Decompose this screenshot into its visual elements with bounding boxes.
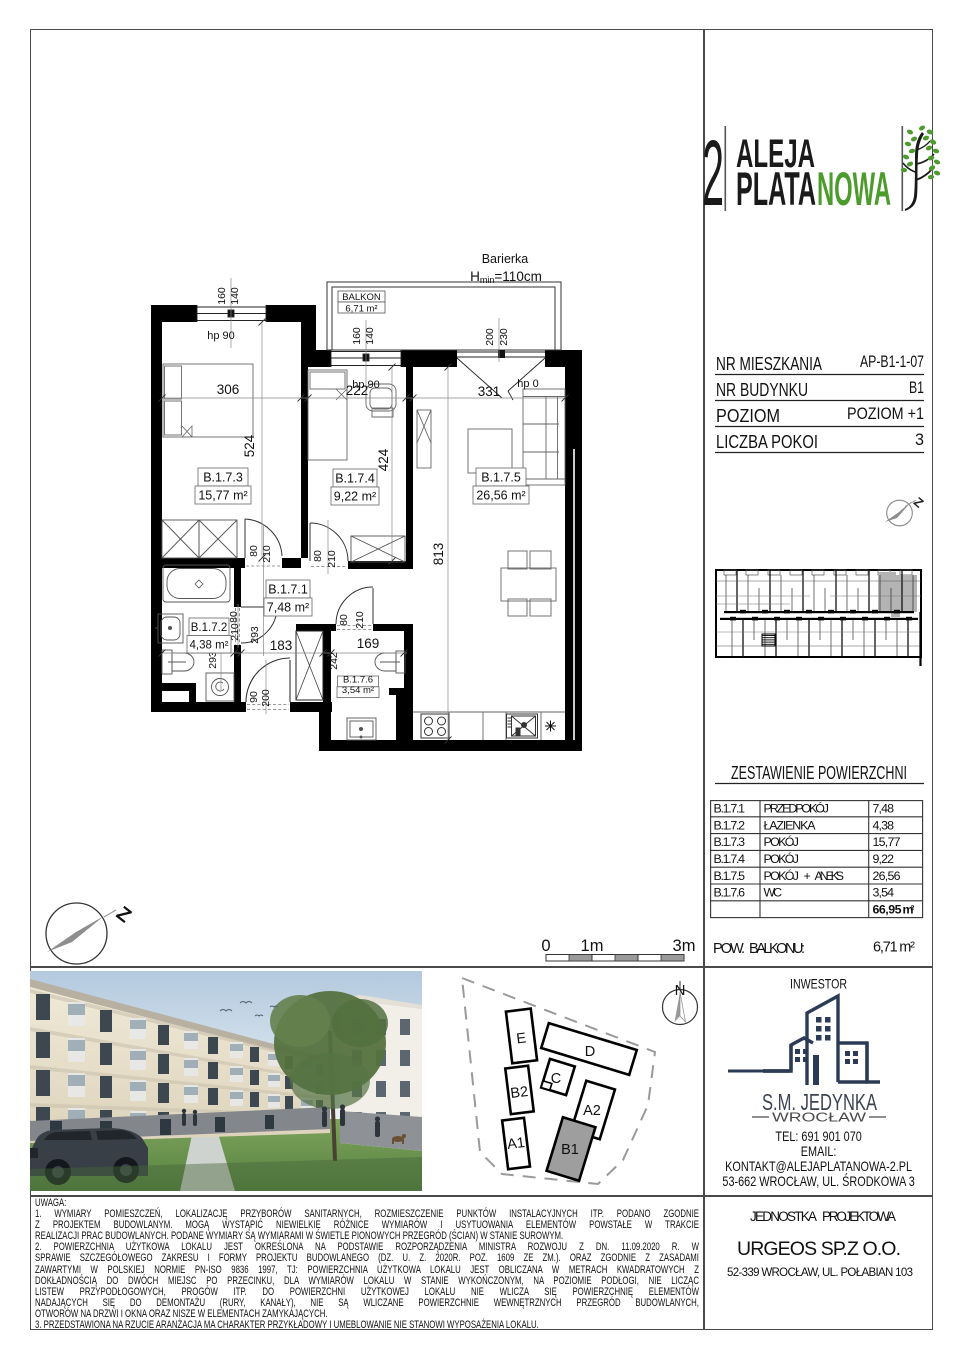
svg-text:A1: A1: [506, 1135, 526, 1153]
svg-text:B1: B1: [561, 1142, 579, 1158]
svg-text:A2: A2: [583, 1103, 601, 1119]
svg-text:POW.: POW.: [713, 941, 745, 957]
svg-text:3: 3: [915, 430, 924, 449]
svg-text:NOWA: NOWA: [817, 162, 891, 215]
svg-text:C: C: [551, 1071, 561, 1087]
svg-text:3,54: 3,54: [873, 886, 895, 900]
svg-text:B.1.7.2: B.1.7.2: [714, 818, 746, 832]
svg-text:PLATA: PLATA: [736, 162, 816, 215]
svg-text:B2: B2: [510, 1084, 530, 1102]
svg-text:7,48: 7,48: [873, 802, 895, 816]
svg-text:JEDNOSTKA: JEDNOSTKA: [750, 1209, 817, 1224]
svg-text:ŁAZIENKA: ŁAZIENKA: [764, 818, 817, 832]
svg-text:15,77: 15,77: [873, 835, 901, 849]
svg-text:NR MIESZKANIA: NR MIESZKANIA: [716, 353, 822, 374]
svg-text:D: D: [585, 1044, 595, 1060]
svg-text:B.1.7.3: B.1.7.3: [714, 835, 746, 849]
svg-text:INWESTOR: INWESTOR: [790, 976, 847, 992]
svg-text:NR BUDYNKU: NR BUDYNKU: [716, 379, 808, 400]
svg-text:Z: Z: [911, 494, 927, 511]
svg-text:POKÓJ: POKÓJ: [764, 868, 799, 883]
svg-text:m²: m²: [903, 902, 915, 916]
svg-text:URGEOS SP.Z O.O.: URGEOS SP.Z O.O.: [737, 1238, 901, 1260]
svg-text:B.1.7.5: B.1.7.5: [714, 869, 746, 883]
svg-text:WC: WC: [764, 886, 783, 900]
svg-text:B.1.7.6: B.1.7.6: [714, 886, 746, 900]
svg-text:AP-B1-1-07: AP-B1-1-07: [860, 352, 924, 371]
svg-text:POZIOM +1: POZIOM +1: [847, 404, 924, 423]
svg-text:POKÓJ: POKÓJ: [764, 851, 799, 866]
svg-text:6,71 m²: 6,71 m²: [873, 940, 915, 956]
svg-text:ZESTAWIENIE POWIERZCHNI: ZESTAWIENIE POWIERZCHNI: [731, 762, 907, 783]
svg-text:B.1.7.4: B.1.7.4: [714, 852, 746, 866]
svg-text:66,95: 66,95: [873, 902, 902, 916]
svg-text:9,22: 9,22: [873, 852, 895, 866]
svg-text:POZIOM: POZIOM: [716, 405, 780, 426]
svg-text:PROJEKTOWA: PROJEKTOWA: [822, 1209, 896, 1224]
svg-text:PRZEDPOKÓJ: PRZEDPOKÓJ: [764, 801, 830, 816]
svg-text:B.1.7.1: B.1.7.1: [714, 802, 746, 816]
svg-text:2: 2: [702, 121, 724, 220]
svg-text:BALKONU:: BALKONU:: [749, 941, 805, 957]
svg-text:52-339 WROCŁAW, UL. POŁABIAN 1: 52-339 WROCŁAW, UL. POŁABIAN 103: [727, 1267, 913, 1279]
svg-text:4,38: 4,38: [873, 818, 895, 832]
svg-text:LICZBA POKOI: LICZBA POKOI: [716, 431, 818, 452]
svg-text:POKÓJ: POKÓJ: [764, 834, 799, 849]
svg-text:B1: B1: [909, 378, 924, 397]
svg-text:ANEKS: ANEKS: [815, 869, 845, 883]
svg-text:WROCŁAW: WROCŁAW: [772, 1111, 866, 1125]
svg-text:26,56: 26,56: [873, 869, 901, 883]
svg-text:+: +: [804, 869, 811, 883]
